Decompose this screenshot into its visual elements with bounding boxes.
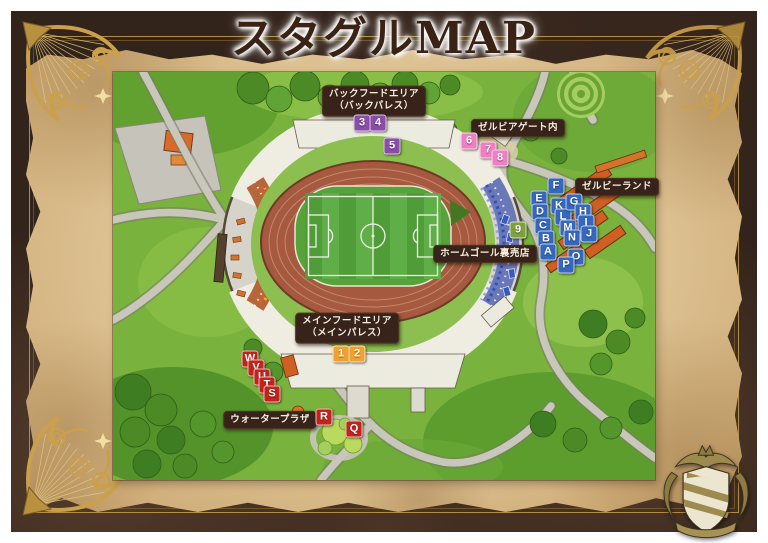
- page-title: スタグルMAP: [0, 2, 768, 66]
- club-crest-emblem: [658, 440, 754, 540]
- stadium-gourmet-map-poster: バックフードエリア（バックパレス）ゼルビアゲート内ゼルビーランドホームゴール裏売…: [0, 0, 768, 543]
- stadium-map-illustration: [113, 72, 655, 480]
